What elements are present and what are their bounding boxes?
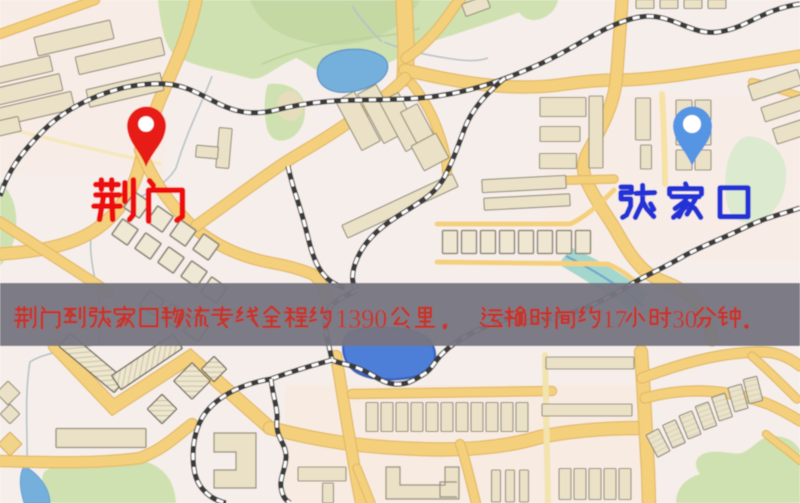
- svg-text:17: 17: [602, 307, 627, 334]
- svg-text:1390: 1390: [335, 305, 387, 334]
- svg-text:30: 30: [672, 307, 697, 334]
